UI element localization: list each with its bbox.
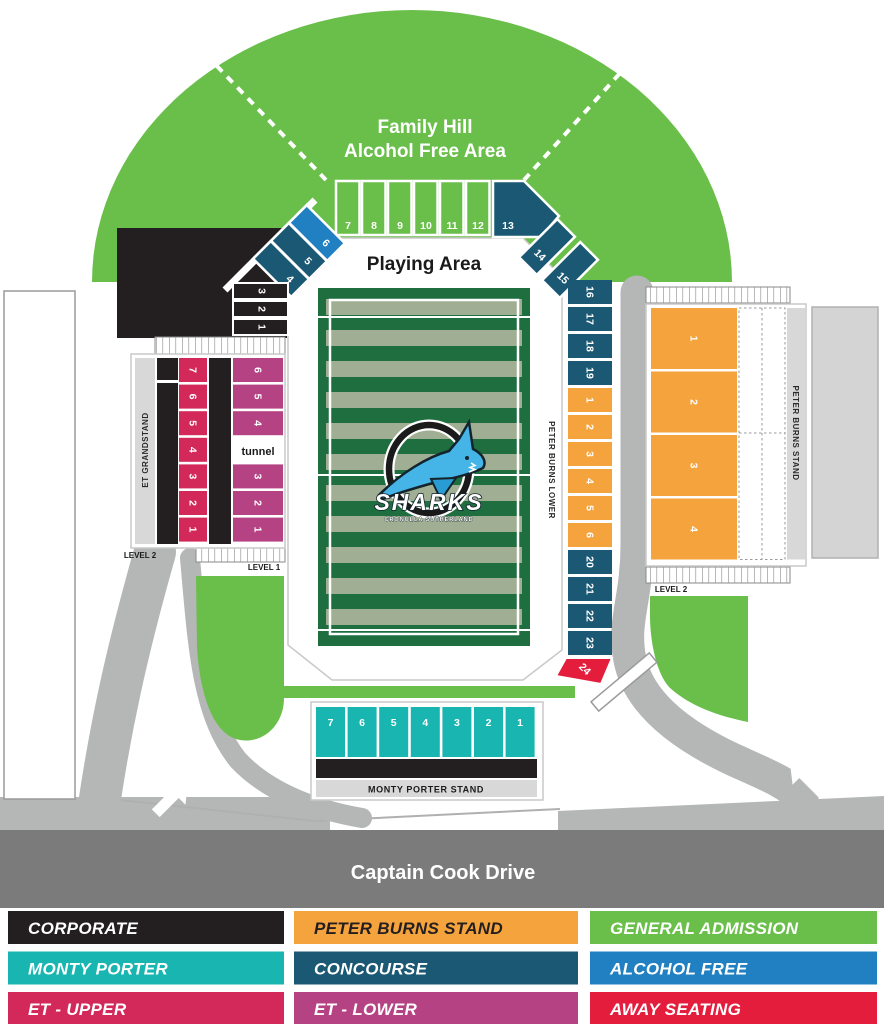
west-building	[4, 291, 75, 799]
monty-porter-sections[interactable]: 7 6 5 4 3 2 1	[316, 707, 535, 757]
playing-area-label: Playing Area	[367, 254, 482, 275]
shark-eye	[465, 456, 469, 460]
svg-text:7: 7	[187, 367, 199, 373]
svg-text:ALCOHOL FREE: ALCOHOL FREE	[609, 960, 748, 979]
svg-text:12: 12	[472, 220, 484, 232]
legend-item-corporate: CORPORATE	[8, 911, 284, 944]
svg-text:CORPORATE: CORPORATE	[28, 919, 138, 938]
svg-text:5: 5	[391, 717, 397, 729]
svg-text:18: 18	[584, 340, 596, 352]
svg-text:3: 3	[256, 288, 268, 294]
legend-item-peter-burns-stand: PETER BURNS STAND	[294, 911, 578, 944]
monty-porter-stand: 7 6 5 4 3 2 1 MONTY PORTER STAND	[311, 702, 543, 800]
level-1-label: LEVEL 1	[248, 563, 281, 572]
et-grandstand-label: ET GRANDSTAND	[141, 412, 150, 487]
svg-text:10: 10	[420, 220, 432, 232]
svg-text:2: 2	[252, 500, 264, 506]
svg-text:5: 5	[584, 505, 596, 511]
svg-text:17: 17	[584, 313, 596, 325]
legend-item-concourse: CONCOURSE	[294, 952, 578, 985]
svg-text:4: 4	[584, 478, 596, 484]
svg-text:6: 6	[584, 532, 596, 538]
svg-text:ET - UPPER: ET - UPPER	[28, 1000, 127, 1019]
svg-text:3: 3	[584, 451, 596, 457]
turnstile-strip-pb-top	[646, 287, 790, 303]
svg-text:8: 8	[371, 220, 377, 232]
legend-item-away-seating: AWAY SEATING	[590, 992, 877, 1024]
turnstile-strip-pb-bottom	[646, 567, 790, 583]
legend-item-et-lower: ET - LOWER	[294, 992, 578, 1024]
svg-text:1: 1	[688, 336, 700, 342]
svg-text:1: 1	[517, 717, 523, 729]
svg-text:3: 3	[187, 473, 199, 479]
family-hill-label-line1: Family Hill	[377, 117, 472, 138]
peter-burns-stand: 1 2 3 4 PETER BURNS STAND LEVEL 2	[646, 287, 806, 594]
svg-text:ET - LOWER: ET - LOWER	[314, 1000, 418, 1019]
svg-text:2: 2	[256, 306, 268, 312]
legend-item-monty-porter: MONTY PORTER	[8, 952, 284, 985]
svg-text:9: 9	[397, 220, 403, 232]
svg-text:13: 13	[502, 220, 514, 232]
svg-text:6: 6	[187, 394, 199, 400]
tunnel-label: tunnel	[242, 446, 275, 458]
svg-text:4: 4	[187, 447, 199, 453]
monty-porter-stand-label: MONTY PORTER STAND	[368, 785, 484, 795]
svg-text:1: 1	[256, 324, 268, 330]
svg-text:4: 4	[688, 526, 700, 532]
svg-text:MONTY PORTER: MONTY PORTER	[28, 960, 168, 979]
svg-text:1: 1	[252, 527, 264, 533]
legend-item-alcohol-free: ALCOHOL FREE	[590, 952, 877, 985]
svg-text:22: 22	[584, 610, 596, 622]
hill-row-sections[interactable]: 7 8 9 10 11 12	[336, 181, 490, 235]
svg-text:3: 3	[454, 717, 460, 729]
svg-text:20: 20	[584, 556, 596, 568]
svg-text:23: 23	[584, 637, 596, 649]
lawn-strip-south	[280, 686, 575, 698]
logo-subtext: CRONULLA SUTHERLAND	[384, 517, 473, 523]
svg-text:19: 19	[584, 367, 596, 379]
svg-text:7: 7	[328, 717, 334, 729]
level-2-left-label: LEVEL 2	[124, 551, 157, 560]
svg-text:1: 1	[187, 527, 199, 533]
corporate-row-sections[interactable]: 3 2 1	[233, 283, 288, 335]
svg-text:PETER BURNS STAND: PETER BURNS STAND	[314, 919, 503, 938]
logo-team-text: SHARKS	[374, 489, 483, 515]
peter-burns-lower-label: PETER BURNS LOWER	[547, 421, 556, 519]
svg-text:2: 2	[486, 717, 492, 729]
svg-text:5: 5	[187, 420, 199, 426]
legend: CORPORATE PETER BURNS STAND GENERAL ADMI…	[8, 911, 877, 1024]
svg-text:11: 11	[446, 220, 457, 232]
et-grandstand: ET GRANDSTAND 7 6 5 4 3 2 1 6 5 4 tunnel…	[124, 337, 285, 572]
svg-text:GENERAL ADMISSION: GENERAL ADMISSION	[610, 919, 799, 938]
peter-burns-stand-label: PETER BURNS STAND	[791, 385, 800, 480]
svg-text:3: 3	[252, 473, 264, 479]
svg-text:AWAY SEATING: AWAY SEATING	[609, 1000, 741, 1019]
turnstile-strip-et-top	[155, 337, 285, 354]
svg-text:16: 16	[584, 286, 596, 298]
svg-text:2: 2	[584, 424, 596, 430]
svg-text:4: 4	[252, 420, 264, 426]
stadium-map: Family Hill Alcohol Free Area Playing Ar…	[0, 0, 884, 1024]
svg-text:1: 1	[584, 397, 596, 403]
level-2-right-label: LEVEL 2	[655, 585, 688, 594]
svg-text:6: 6	[252, 367, 264, 373]
east-building	[812, 307, 878, 558]
svg-text:CONCOURSE: CONCOURSE	[314, 960, 428, 979]
et-upper-sections[interactable]: 7 6 5 4 3 2 1	[179, 358, 207, 542]
svg-text:7: 7	[345, 220, 351, 232]
svg-text:4: 4	[422, 717, 428, 729]
legend-item-et-upper: ET - UPPER	[8, 992, 284, 1024]
svg-text:21: 21	[584, 583, 596, 595]
svg-text:5: 5	[252, 394, 264, 400]
captain-cook-drive-label: Captain Cook Drive	[351, 862, 535, 884]
legend-item-general-admission: GENERAL ADMISSION	[590, 911, 877, 944]
family-hill-label-line2: Alcohol Free Area	[344, 141, 506, 162]
svg-text:2: 2	[187, 500, 199, 506]
svg-text:2: 2	[688, 399, 700, 405]
svg-text:3: 3	[688, 463, 700, 469]
svg-text:6: 6	[359, 717, 365, 729]
